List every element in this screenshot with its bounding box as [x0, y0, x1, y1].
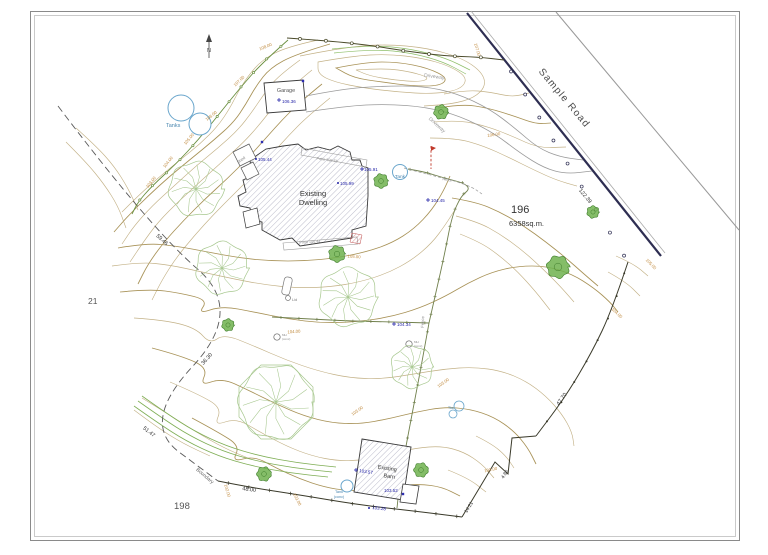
- tree-branch: [411, 348, 414, 367]
- tree-branch: [348, 273, 358, 297]
- tree-branch: [401, 352, 412, 367]
- lot-area: 6358sq.m.: [509, 219, 544, 228]
- contour-line: [192, 418, 460, 496]
- tree-branch: [394, 360, 412, 367]
- tree-branch: [348, 282, 369, 297]
- contour-label: 105.00: [347, 254, 361, 260]
- survey-mark-icon: [402, 493, 404, 495]
- fence-marker: [280, 45, 282, 47]
- contour-label: 103.00: [436, 377, 450, 389]
- dim-east: 47.70: [556, 392, 569, 407]
- contour-label: 103.00: [350, 405, 364, 417]
- contour-line: [460, 234, 550, 310]
- tree-branch: [412, 358, 429, 367]
- dashed-boundary-line: [58, 106, 220, 481]
- tree-icon: [546, 256, 570, 279]
- contour-line: [616, 256, 648, 276]
- fence-marker: [524, 93, 527, 96]
- site-features: [168, 34, 464, 509]
- contour-label: 104.00: [611, 307, 624, 320]
- contour-line: [152, 348, 536, 464]
- tree-branch: [412, 367, 419, 385]
- dim-road: 122.39: [577, 188, 592, 205]
- spot-105-91: 105.91: [364, 167, 378, 172]
- tree-branch: [399, 367, 412, 380]
- survey-plan-sheet: Sample Road1966358sq.m.21198NGarageShedE…: [0, 0, 768, 555]
- dim-sw: 51.47: [141, 426, 156, 439]
- road: [467, 11, 739, 256]
- lid-label: Lid: [292, 298, 297, 302]
- boundary-dot: [585, 360, 587, 362]
- tree-branch: [348, 296, 374, 300]
- spot-105-99: 105.99: [340, 181, 354, 186]
- survey-mark-icon: [302, 80, 304, 82]
- contour-label: 108.00: [258, 42, 273, 52]
- lot-number: 196: [511, 204, 529, 216]
- north-label: N: [207, 48, 211, 54]
- tree-icon: [319, 267, 378, 327]
- tree-branch: [276, 389, 307, 402]
- spot-level-dot-icon: [255, 158, 257, 160]
- contour-label: 107.00: [232, 74, 245, 87]
- tree-branch: [199, 263, 222, 268]
- contour-line: [318, 55, 465, 94]
- spot-103-28: 103.28: [372, 505, 387, 511]
- road-edge-line: [471, 11, 665, 253]
- contour-line: [170, 382, 494, 478]
- fence-marker: [623, 254, 626, 257]
- fence-label-vertical: Fence: [420, 315, 425, 327]
- north-arrow-icon: [206, 34, 212, 42]
- boundary-dot: [573, 381, 575, 383]
- fence-marker: [228, 101, 230, 103]
- tanks-label: Tanks: [166, 123, 181, 129]
- fence-marker: [216, 115, 218, 117]
- fence-marker: [324, 39, 327, 42]
- tree-icon: [374, 174, 389, 189]
- tree-branch: [172, 187, 196, 191]
- lid-circle: [286, 296, 291, 301]
- mh-label-2: (conc): [282, 337, 290, 341]
- fence-label-diagonal: Fence: [442, 177, 452, 183]
- tree-branch: [348, 297, 360, 320]
- fence-marker: [453, 55, 456, 58]
- tree-branch: [208, 268, 222, 287]
- boundary-dot: [597, 339, 599, 341]
- garage: [264, 80, 306, 113]
- driveway-edge: [306, 86, 583, 160]
- fence-marker: [179, 159, 181, 161]
- spot-103-52: 103.52: [384, 488, 398, 493]
- fence-marker: [428, 53, 431, 56]
- tree-icon: [222, 319, 235, 332]
- spot-104-34: 104.34: [397, 322, 411, 327]
- fence-marker: [402, 49, 405, 52]
- contour-label: 103.00: [292, 492, 303, 507]
- tree-branch: [323, 291, 348, 297]
- dim-se: 14.21: [463, 501, 475, 515]
- tree-branch: [250, 402, 276, 423]
- tree-icon: [391, 345, 433, 389]
- tree-branch: [348, 297, 371, 310]
- tree-branch: [276, 369, 281, 402]
- tree-canopy: [413, 463, 428, 477]
- tree-branch: [177, 189, 196, 204]
- tank-conc-label-2: (conc): [334, 495, 345, 499]
- fence-marker: [252, 71, 254, 73]
- dwelling-label-2: Dwelling: [299, 198, 327, 207]
- tree-canopy: [546, 256, 570, 279]
- tank-label: Tank: [395, 174, 406, 180]
- water-tank-symbol: [168, 95, 194, 121]
- boundary-dot: [623, 272, 625, 274]
- site-plan-drawing: Sample Road1966358sq.m.21198NGarageShedE…: [0, 0, 768, 555]
- tree-branch: [218, 268, 222, 291]
- mh-label-4: (conc): [414, 344, 422, 348]
- fence-marker: [165, 172, 167, 174]
- road-name: Sample Road: [536, 67, 592, 131]
- tree-canopy: [329, 246, 346, 263]
- tank-conc-label-1: Tank: [335, 490, 343, 494]
- contour-label: 107.00: [473, 43, 482, 58]
- contour-line: [120, 266, 618, 323]
- contour-line: [476, 436, 514, 468]
- flag-icon: [431, 146, 436, 151]
- spot-105-44: 105.44: [258, 157, 272, 162]
- contour-line: [444, 91, 529, 96]
- dim-south: 48.00: [242, 486, 256, 494]
- tree-branch: [408, 367, 412, 386]
- spot-level-dot-icon: [368, 507, 370, 509]
- tree-branch: [265, 402, 276, 434]
- contour-label: 103.00: [145, 175, 157, 189]
- tree-canopy: [222, 319, 235, 332]
- contour-label: 102.00: [223, 484, 231, 499]
- fence-marker: [538, 116, 541, 119]
- contour-label: 105.00: [183, 132, 196, 146]
- trees: [168, 105, 599, 482]
- manhole-symbol: [406, 341, 412, 347]
- spot-level-dot-icon: [337, 182, 339, 184]
- contour-label: 105.00: [645, 257, 658, 270]
- tree-branch: [323, 297, 348, 305]
- lot-boundaries: [58, 37, 628, 518]
- contour-line: [448, 470, 486, 492]
- east-boundary: [536, 262, 628, 436]
- tree-branch: [196, 189, 220, 194]
- adjacent-lot-west: 21: [88, 296, 98, 306]
- tree-icon: [329, 246, 346, 263]
- steps-red-hatch: [350, 233, 362, 244]
- spot-104-45: 104.45: [431, 198, 445, 203]
- fence-marker: [376, 45, 379, 48]
- spot-garage: 106.36: [282, 99, 296, 104]
- fence-marker: [566, 162, 569, 165]
- top-boundary-fence: [287, 38, 504, 60]
- boundary-dot: [607, 317, 609, 319]
- tree-branch: [276, 375, 295, 402]
- contour-line: [608, 272, 640, 296]
- tree-branch: [276, 402, 309, 409]
- tree-icon: [196, 241, 250, 294]
- contour-label: 103.00: [484, 466, 498, 474]
- boundary-dot: [546, 420, 548, 422]
- tree-branch: [222, 246, 230, 268]
- small-tank-symbol: [449, 410, 457, 418]
- adjacent-lot-south: 198: [174, 501, 190, 512]
- septic-lid-symbol: [281, 276, 293, 295]
- dwelling-label-1: Existing: [300, 189, 326, 198]
- contour-line: [438, 105, 551, 123]
- fence-marker: [240, 86, 242, 88]
- tree-canopy: [374, 174, 389, 189]
- boundary-dot: [616, 295, 618, 297]
- fence-marker: [479, 56, 482, 59]
- driveways: [134, 46, 592, 477]
- south-boundary-fence: [218, 481, 462, 517]
- garage-label: Garage: [277, 88, 295, 94]
- fence-marker: [139, 199, 141, 201]
- fence-marker: [192, 145, 194, 147]
- tree-canopy: [587, 206, 600, 219]
- tree-branch: [196, 189, 202, 213]
- tree-branch: [196, 180, 219, 189]
- fence-marker: [350, 42, 353, 45]
- small-tank-symbol: [454, 401, 464, 411]
- tree-branch: [184, 168, 196, 189]
- tree-branch: [330, 278, 348, 297]
- survey-mark-icon: [261, 141, 263, 143]
- driveway-label-1: Driveway: [424, 73, 446, 82]
- contour-line: [300, 45, 485, 106]
- tree-branch: [332, 297, 348, 317]
- contour-label: 104.00: [287, 329, 301, 335]
- fence-marker: [510, 70, 513, 73]
- dwelling-annex: [243, 208, 260, 228]
- patio-lower-label: Patio 105.41: [299, 239, 321, 244]
- fence-marker: [552, 139, 555, 142]
- tree-branch: [196, 189, 214, 206]
- fence-marker: [608, 231, 611, 234]
- tree-icon: [413, 463, 428, 477]
- tree-branch: [259, 373, 276, 402]
- tree-icon: [587, 206, 600, 219]
- fence-marker: [266, 58, 268, 60]
- manhole-symbol: [274, 334, 280, 340]
- tree-branch: [344, 297, 349, 323]
- tks-label: Tks: [448, 406, 454, 410]
- fence-marker: [298, 37, 301, 40]
